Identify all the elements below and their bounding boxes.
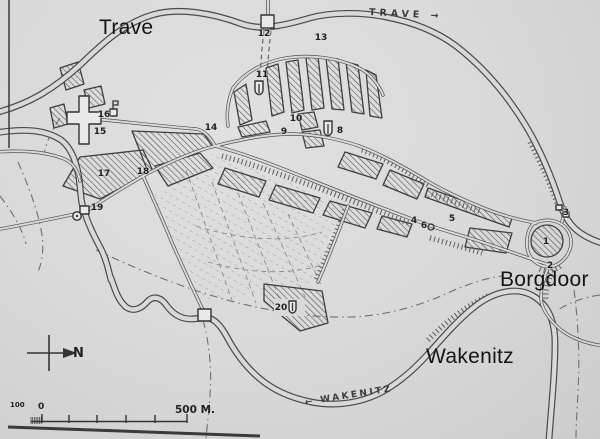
borgdoor-region-label: Borgdoor [500, 268, 589, 292]
map-artwork [0, 0, 600, 439]
scanned-city-map: Trave Borgdoor Wakenitz TRAVE → ← WAKENI… [0, 0, 600, 439]
wakenitz-region-label: Wakenitz [426, 345, 514, 369]
west-bridge-icon [80, 206, 89, 214]
wakenitz-bridge-icon [198, 309, 211, 321]
north-label: N [73, 346, 84, 361]
city-blocks [50, 57, 512, 331]
trave-region-label: Trave [99, 16, 153, 40]
north-arrow-icon [27, 335, 77, 371]
trave-bridge-icon [261, 15, 274, 28]
gate-icon-3b [563, 212, 569, 217]
gate-icon-3 [556, 205, 562, 210]
building-icon-16 [110, 109, 117, 116]
castle-mound [531, 225, 563, 257]
scale-zero-label: 0 [38, 402, 44, 412]
scale-max-label: 500 M. [175, 404, 215, 416]
scale-hundred-label: 100 [10, 401, 25, 409]
scale-bar [31, 414, 187, 424]
flag-icon-16 [113, 101, 118, 109]
